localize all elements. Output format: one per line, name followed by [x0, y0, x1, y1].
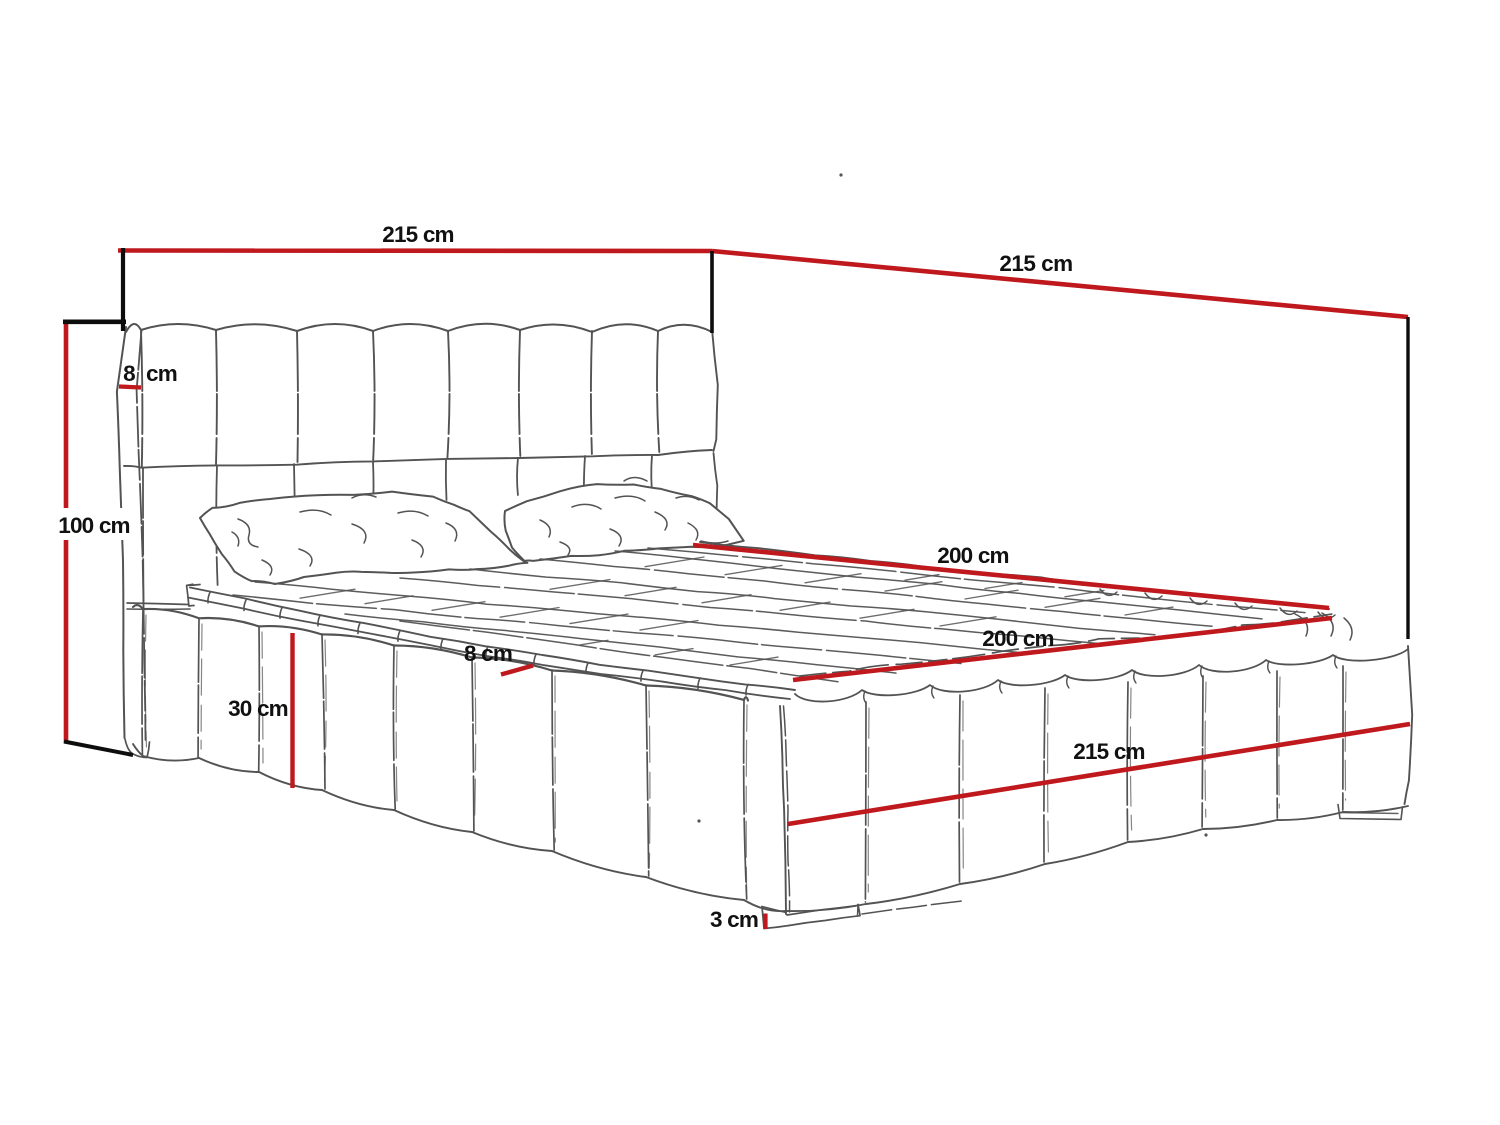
- svg-text:200 cm: 200 cm: [937, 543, 1009, 568]
- svg-text:8 cm: 8 cm: [464, 641, 512, 666]
- svg-text:215 cm: 215 cm: [999, 251, 1072, 276]
- svg-text:215 cm: 215 cm: [1073, 739, 1145, 764]
- svg-text:cm: cm: [146, 361, 177, 386]
- svg-text:3 cm: 3 cm: [710, 907, 758, 932]
- svg-text:215 cm: 215 cm: [382, 222, 454, 247]
- svg-text:100 cm: 100 cm: [58, 513, 130, 538]
- svg-text:8: 8: [123, 361, 135, 386]
- svg-text:200 cm: 200 cm: [982, 626, 1054, 651]
- svg-text:30 cm: 30 cm: [228, 696, 288, 721]
